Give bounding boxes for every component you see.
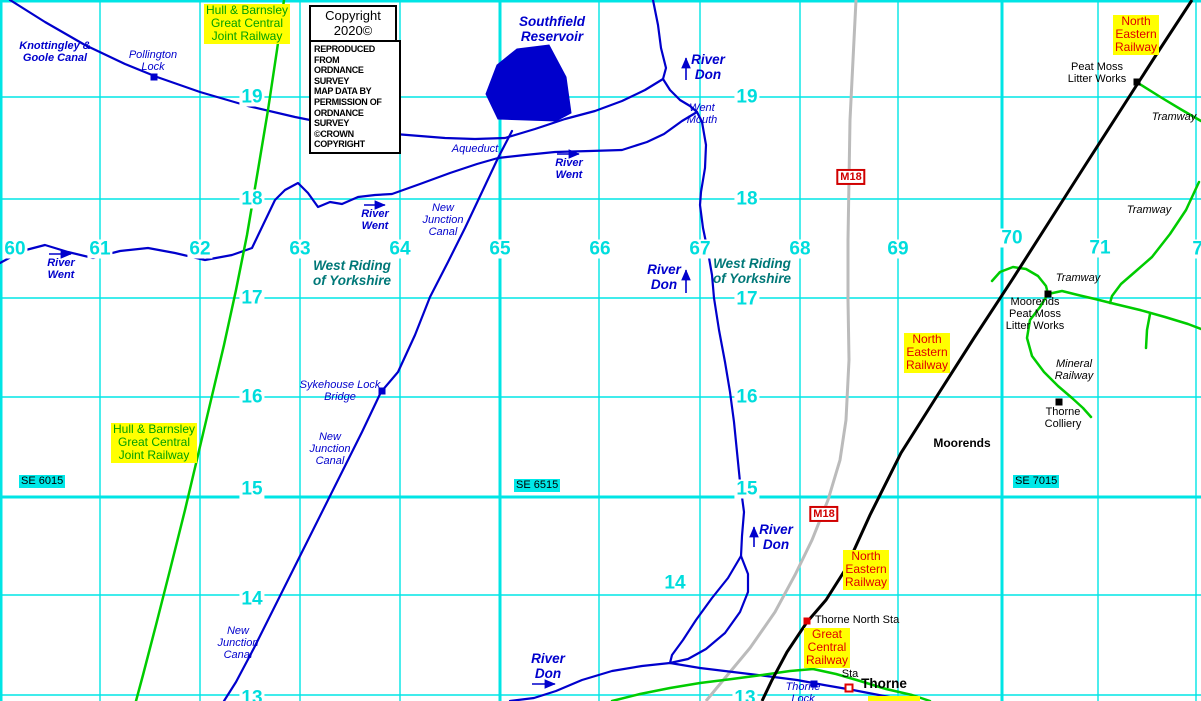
- new-junction-canal-3-label-text: Junction: [218, 638, 259, 650]
- grid-northing-15-text: 15: [736, 480, 757, 499]
- great-central-railway-label: GreatCentralRailway: [804, 628, 850, 668]
- tramway-2-label: Tramway: [1127, 205, 1171, 217]
- m18-road-badge-text: M18: [813, 508, 834, 520]
- grid-northing-14-text: 14: [241, 590, 262, 609]
- moorends-peat-moss-litter-works-label-text: Litter Works: [1006, 321, 1064, 333]
- great-central-railway-label-text: Railway: [806, 654, 848, 667]
- southfield-reservoir-label: SouthfieldReservoir: [519, 15, 585, 44]
- grid-northing-14-text: 14: [664, 574, 685, 593]
- grid-easting-61: 61: [87, 240, 112, 259]
- grid-easting-72: 72: [1190, 240, 1201, 259]
- thorne-north-sta-label-text: Thorne North Sta: [815, 615, 899, 627]
- grid-northing-19-text: 19: [736, 88, 757, 107]
- grid-northing-19: 19: [734, 88, 759, 107]
- new-junction-canal-1-label-text: Canal: [423, 227, 464, 239]
- tramway-line-3: [1048, 291, 1201, 329]
- grid-northing-15: 15: [239, 480, 264, 499]
- grid-northing-16-text: 16: [241, 388, 262, 407]
- grid-northing-17: 17: [239, 289, 264, 308]
- hull-barnsley-railway-1-label-text: Joint Railway: [206, 30, 288, 43]
- thorne-lock-label-text: Lock: [786, 694, 821, 701]
- new-junction-canal-1-label-text: Junction: [423, 215, 464, 227]
- sta-label-text: Sta: [842, 669, 859, 681]
- grid-easting-65: 65: [487, 240, 512, 259]
- grid-square-ref: SE 6015: [19, 475, 65, 488]
- moorends-peat-moss-litter-works-label-text: Peat Moss: [1006, 309, 1064, 321]
- grid-easting-64: 64: [387, 240, 412, 259]
- grid-easting-71-text: 71: [1089, 239, 1110, 258]
- grid-easting-66-text: 66: [589, 240, 610, 259]
- mineral-railway-label: MineralRailway: [1055, 359, 1094, 383]
- thorne-north-sta-marker: [804, 618, 811, 625]
- tramway-line-2: [1110, 182, 1199, 303]
- grid-easting-66: 66: [587, 240, 612, 259]
- grid-northing-19-text: 19: [241, 88, 262, 107]
- grid-northing-18-text: 18: [241, 190, 262, 209]
- pollington-lock-label: PollingtonLock: [129, 50, 177, 74]
- peat-moss-litter-works-label-text: Litter Works: [1068, 74, 1126, 86]
- west-riding-of-yorkshire-1-label-text: West Riding: [313, 259, 391, 274]
- grid-easting-67-text: 67: [689, 240, 710, 259]
- grid-square-ref: SE 6515: [514, 479, 560, 492]
- river-don-4-label-text: River: [531, 652, 565, 667]
- southfield-reservoir-label-text: Reservoir: [519, 30, 585, 45]
- grid-easting-62-text: 62: [189, 240, 210, 259]
- tramway-3-label: Tramway: [1056, 273, 1100, 285]
- grid-easting-70: 70: [999, 229, 1024, 248]
- grid-easting-69: 69: [885, 240, 910, 259]
- grid-northing-18: 18: [239, 190, 264, 209]
- hull-barnsley-railway-2-label-text: Joint Railway: [113, 449, 195, 462]
- grid-easting-63-text: 63: [289, 240, 310, 259]
- thorne-label-text: Thorne: [861, 677, 907, 692]
- grid-northing-18: 18: [734, 190, 759, 209]
- thorne-sta-marker: [845, 684, 854, 693]
- west-riding-of-yorkshire-2-label-text: of Yorkshire: [713, 272, 791, 287]
- new-junction-canal-2-label-text: Junction: [310, 444, 351, 456]
- grid-northing-14: 14: [239, 590, 264, 609]
- thorne-north-sta-label: Thorne North Sta: [815, 615, 899, 627]
- green-railways: [136, 0, 1201, 701]
- new-junction-canal-2-label-text: Canal: [310, 456, 351, 468]
- hull-barnsley-railway-2-label: Hull & BarnsleyGreat CentralJoint Railwa…: [111, 423, 197, 463]
- grid-square-ref-text: SE 7015: [1015, 475, 1057, 488]
- river-don-1-label-text: River: [691, 53, 725, 68]
- moorends-label-text: Moorends: [933, 437, 990, 450]
- sykehouse-lock-bridge-label-text: Bridge: [300, 392, 381, 404]
- sta-label: Sta: [842, 669, 859, 681]
- waterways: [0, 0, 912, 701]
- river-don-1-label-text: Don: [691, 68, 725, 83]
- moorends-peat-moss-litter-works-label: MoorendsPeat MossLitter Works: [1006, 297, 1064, 333]
- m18-road-badge: M18: [836, 169, 865, 185]
- tramway-1-label-text: Tramway: [1152, 112, 1196, 124]
- thorne-colliery-label-text: Colliery: [1045, 419, 1082, 431]
- west-riding-of-yorkshire-1-label: West Ridingof Yorkshire: [313, 259, 391, 288]
- os-notice-line: REPRODUCED FROM: [314, 44, 396, 65]
- grid-northing-13-text: 13: [241, 689, 262, 701]
- grid-northing-16: 16: [734, 388, 759, 407]
- map-canvas: Copyright 2020© KeymapsGB REPRODUCED FRO…: [0, 0, 1201, 701]
- tramway-1-label: Tramway: [1152, 112, 1196, 124]
- west-riding-of-yorkshire-2-label: West Ridingof Yorkshire: [713, 257, 791, 286]
- grid-easting-60: 60: [2, 240, 27, 259]
- peat-moss-litter-works-marker: [1134, 79, 1141, 86]
- grid-northing-16: 16: [239, 388, 264, 407]
- grid-northing-16-text: 16: [736, 388, 757, 407]
- thorne-colliery-marker: [1056, 399, 1063, 406]
- river-went-2-label-text: Went: [361, 221, 389, 233]
- os-notice-line: ORDNANCE SURVEY: [314, 108, 396, 129]
- thorne-label: Thorne: [861, 677, 907, 692]
- grid-northing-15-text: 15: [241, 480, 262, 499]
- os-notice-line: ORDNANCE SURVEY: [314, 65, 396, 86]
- north-eastern-railway-1-label: NorthEasternRailway: [1113, 15, 1159, 55]
- grid-northing-17-text: 17: [241, 289, 262, 308]
- aqueduct-label: Aqueduct: [452, 144, 498, 156]
- grid-northing-15: 15: [734, 480, 759, 499]
- river-don-3-label-text: River: [759, 523, 793, 538]
- river-don-2-label: RiverDon: [647, 263, 681, 292]
- north-eastern-railway-3-label: NorthEasternRailway: [843, 550, 889, 590]
- os-notice-line: PERMISSION OF: [314, 97, 396, 108]
- went-mouth-label-text: Mouth: [687, 115, 718, 127]
- grid-lines-major: [0, 0, 1201, 701]
- river-don-3-label-text: Don: [759, 538, 793, 553]
- grid-northing-17: 17: [734, 290, 759, 309]
- grid-easting-62: 62: [187, 240, 212, 259]
- new-junction-canal-1-label: NewJunctionCanal: [423, 203, 464, 239]
- peat-moss-litter-works-label: Peat MossLitter Works: [1068, 62, 1126, 86]
- river-don-2-label-text: River: [647, 263, 681, 278]
- thorne-colliery-label: ThorneColliery: [1045, 407, 1082, 431]
- river-don-1-label: RiverDon: [691, 53, 725, 82]
- map-lines-layer: [0, 0, 1201, 701]
- grid-northing-19: 19: [239, 88, 264, 107]
- river-went-3-label-text: Went: [555, 170, 583, 182]
- north-eastern-railway-1-label-text: Railway: [1115, 41, 1157, 54]
- grid-square-ref: SE 7015: [1013, 475, 1059, 488]
- hull-barnsley-railway-1-label: Hull & BarnsleyGreat CentralJoint Railwa…: [204, 4, 290, 44]
- grid-easting-61-text: 61: [89, 240, 110, 259]
- tramway-branch-line: [1146, 314, 1150, 348]
- river-don-4-label: RiverDon: [531, 652, 565, 681]
- grid-northing-14: 14: [662, 574, 687, 593]
- river-went-1-label: RiverWent: [47, 258, 75, 282]
- grid-northing-13: 13: [732, 689, 757, 701]
- river-don-4-label-text: Don: [531, 667, 565, 682]
- moorends-label: Moorends: [933, 437, 990, 450]
- clipped-yellow-label: [868, 696, 920, 701]
- pollington-lock-label-text: Lock: [129, 62, 177, 74]
- grid-easting-69-text: 69: [887, 240, 908, 259]
- grid-easting-68-text: 68: [789, 240, 810, 259]
- os-notice-line: MAP DATA BY: [314, 86, 396, 97]
- grid-easting-71: 71: [1087, 239, 1112, 258]
- went-mouth-label: WentMouth: [687, 103, 718, 127]
- grid-easting-60-text: 60: [4, 240, 25, 259]
- tramway-2-label-text: Tramway: [1127, 205, 1171, 217]
- sykehouse-lock-bridge-marker: [379, 388, 386, 395]
- river-went-2-label: RiverWent: [361, 209, 389, 233]
- river-don-2-label-text: Don: [647, 278, 681, 293]
- moorends-peat-moss-litter-works-marker: [1045, 291, 1052, 298]
- north-eastern-railway-line: [762, 0, 1192, 701]
- os-notice-line: ©CROWN COPYRIGHT: [314, 129, 396, 150]
- north-eastern-railway-3-label-text: Railway: [845, 576, 887, 589]
- river-went-1-label-text: Went: [47, 270, 75, 282]
- grid-northing-13-text: 13: [734, 689, 755, 701]
- grid-square-ref-text: SE 6515: [516, 479, 558, 492]
- knottingley-goole-canal-label-text: Goole Canal: [19, 53, 91, 65]
- grid-lines: [0, 0, 1201, 701]
- m18-road-badge-text: M18: [840, 171, 861, 183]
- thorne-lock-marker: [811, 681, 818, 688]
- grid-easting-63: 63: [287, 240, 312, 259]
- flow-arrows: [49, 58, 754, 684]
- grid-easting-68: 68: [787, 240, 812, 259]
- west-riding-of-yorkshire-1-label-text: of Yorkshire: [313, 274, 391, 289]
- grid-square-ref-text: SE 6015: [21, 475, 63, 488]
- mineral-railway-label-text: Railway: [1055, 371, 1094, 383]
- knottingley-goole-canal-label: Knottingley &Goole Canal: [19, 41, 91, 65]
- grid-northing-13: 13: [239, 689, 264, 701]
- new-junction-canal-3-label-text: Canal: [218, 650, 259, 662]
- aqueduct-label-text: Aqueduct: [452, 144, 498, 156]
- north-eastern-railway-2-label: NorthEasternRailway: [904, 333, 950, 373]
- new-junction-canal-2-label: NewJunctionCanal: [310, 432, 351, 468]
- sykehouse-lock-bridge-label: Sykehouse LockBridge: [300, 380, 381, 404]
- new-junction-canal-3-label: NewJunctionCanal: [218, 626, 259, 662]
- m18-road-badge: M18: [809, 506, 838, 522]
- os-notice-box: REPRODUCED FROM ORDNANCE SURVEY MAP DATA…: [309, 40, 401, 154]
- grid-easting-67: 67: [687, 240, 712, 259]
- m18-road: [706, 0, 856, 701]
- grid-easting-65-text: 65: [489, 240, 510, 259]
- river-don-3-label: RiverDon: [759, 523, 793, 552]
- river-went-3-label: RiverWent: [555, 158, 583, 182]
- grid-easting-70-text: 70: [1001, 229, 1022, 248]
- grid-easting-72-text: 72: [1192, 240, 1201, 259]
- tramway-3-label-text: Tramway: [1056, 273, 1100, 285]
- grid-northing-18-text: 18: [736, 190, 757, 209]
- grid-northing-17-text: 17: [736, 290, 757, 309]
- west-riding-of-yorkshire-2-label-text: West Riding: [713, 257, 791, 272]
- copyright-line1: Copyright 2020©: [311, 9, 395, 39]
- north-eastern-railway-2-label-text: Railway: [906, 359, 948, 372]
- pollington-lock-marker: [151, 74, 158, 81]
- grid-easting-64-text: 64: [389, 240, 410, 259]
- southfield-reservoir-label-text: Southfield: [519, 15, 585, 30]
